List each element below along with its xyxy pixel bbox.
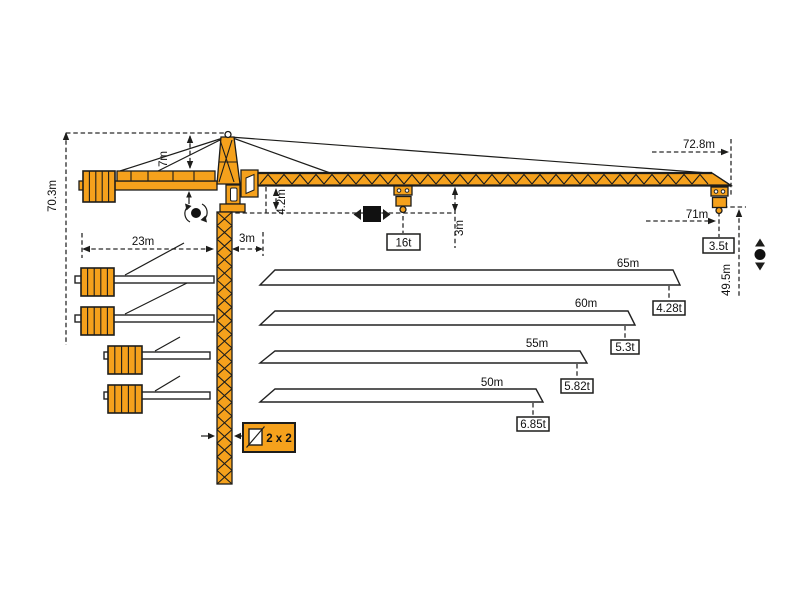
jib-variant-length-label: 50m bbox=[481, 377, 503, 389]
mast-section-label: 2 x 2 bbox=[266, 433, 292, 445]
capacity-badge-label: 5.82t bbox=[564, 381, 590, 393]
trolley-travel-square bbox=[363, 206, 381, 222]
slewing-dot bbox=[191, 208, 201, 218]
counterweight-block bbox=[81, 307, 114, 335]
jib-depth-label: 4.2m bbox=[276, 189, 288, 215]
max-radius-label: 71m bbox=[686, 209, 708, 221]
tower-head-height-label: 7m bbox=[158, 151, 170, 167]
counterweight-block bbox=[81, 268, 114, 296]
counterjib-radius-label: 23m bbox=[132, 236, 154, 248]
mast-section-callout: 2 x 2 bbox=[243, 423, 295, 452]
crane-diagram-page: 65m 60m 55m 50m 4.28t 5.3t 5.82t 6.85t 7… bbox=[0, 0, 800, 600]
trolley-wheel bbox=[714, 190, 718, 194]
jib-variant-bar bbox=[260, 389, 543, 402]
total-height-label: 70.3m bbox=[47, 180, 59, 212]
counterweight-block bbox=[108, 385, 142, 413]
overall-length-label: 72.8m bbox=[683, 139, 715, 151]
max-capacity-label: 16t bbox=[396, 238, 413, 250]
capacity-badge-label: 6.85t bbox=[520, 419, 546, 431]
trolley-wheel bbox=[405, 189, 409, 193]
tower-mast bbox=[217, 212, 232, 484]
cab-window bbox=[231, 188, 238, 201]
trolley-body bbox=[711, 187, 728, 196]
capacity-badge-label: 5.3t bbox=[615, 342, 635, 354]
jib-variant-length-label: 60m bbox=[575, 298, 597, 310]
apex-pin bbox=[225, 132, 231, 138]
capacity-badge-label: 4.28t bbox=[656, 303, 682, 315]
hook-clearance-label: 3m bbox=[454, 220, 466, 236]
counter-jib-platform bbox=[117, 171, 215, 181]
hook-icon bbox=[400, 207, 406, 213]
tower-crane-diagram: 65m 60m 55m 50m 4.28t 5.3t 5.82t 6.85t 7… bbox=[0, 0, 800, 600]
counterweight-block bbox=[108, 346, 142, 374]
trolley-wheel bbox=[721, 190, 725, 194]
hook-block bbox=[713, 198, 727, 208]
hook-height-label: 49.5m bbox=[721, 264, 733, 296]
jib-variant-bar bbox=[260, 311, 635, 325]
jib-foot-opening bbox=[246, 175, 254, 194]
counterweight-block bbox=[83, 171, 115, 202]
jib-variant-bar bbox=[260, 351, 587, 363]
background bbox=[0, 0, 800, 600]
slewing-platform bbox=[220, 204, 245, 212]
hoist-dot bbox=[755, 249, 766, 260]
trolley-wheel bbox=[397, 189, 401, 193]
tip-capacity-label: 3.5t bbox=[709, 241, 729, 253]
jib-variant-length-label: 55m bbox=[526, 338, 548, 350]
mast-to-pivot-label: 3m bbox=[239, 233, 255, 245]
jib-variant-length-label: 65m bbox=[617, 258, 639, 270]
jib-variant-bar bbox=[260, 270, 680, 285]
hook-block bbox=[396, 197, 411, 207]
hook-icon bbox=[716, 208, 722, 214]
